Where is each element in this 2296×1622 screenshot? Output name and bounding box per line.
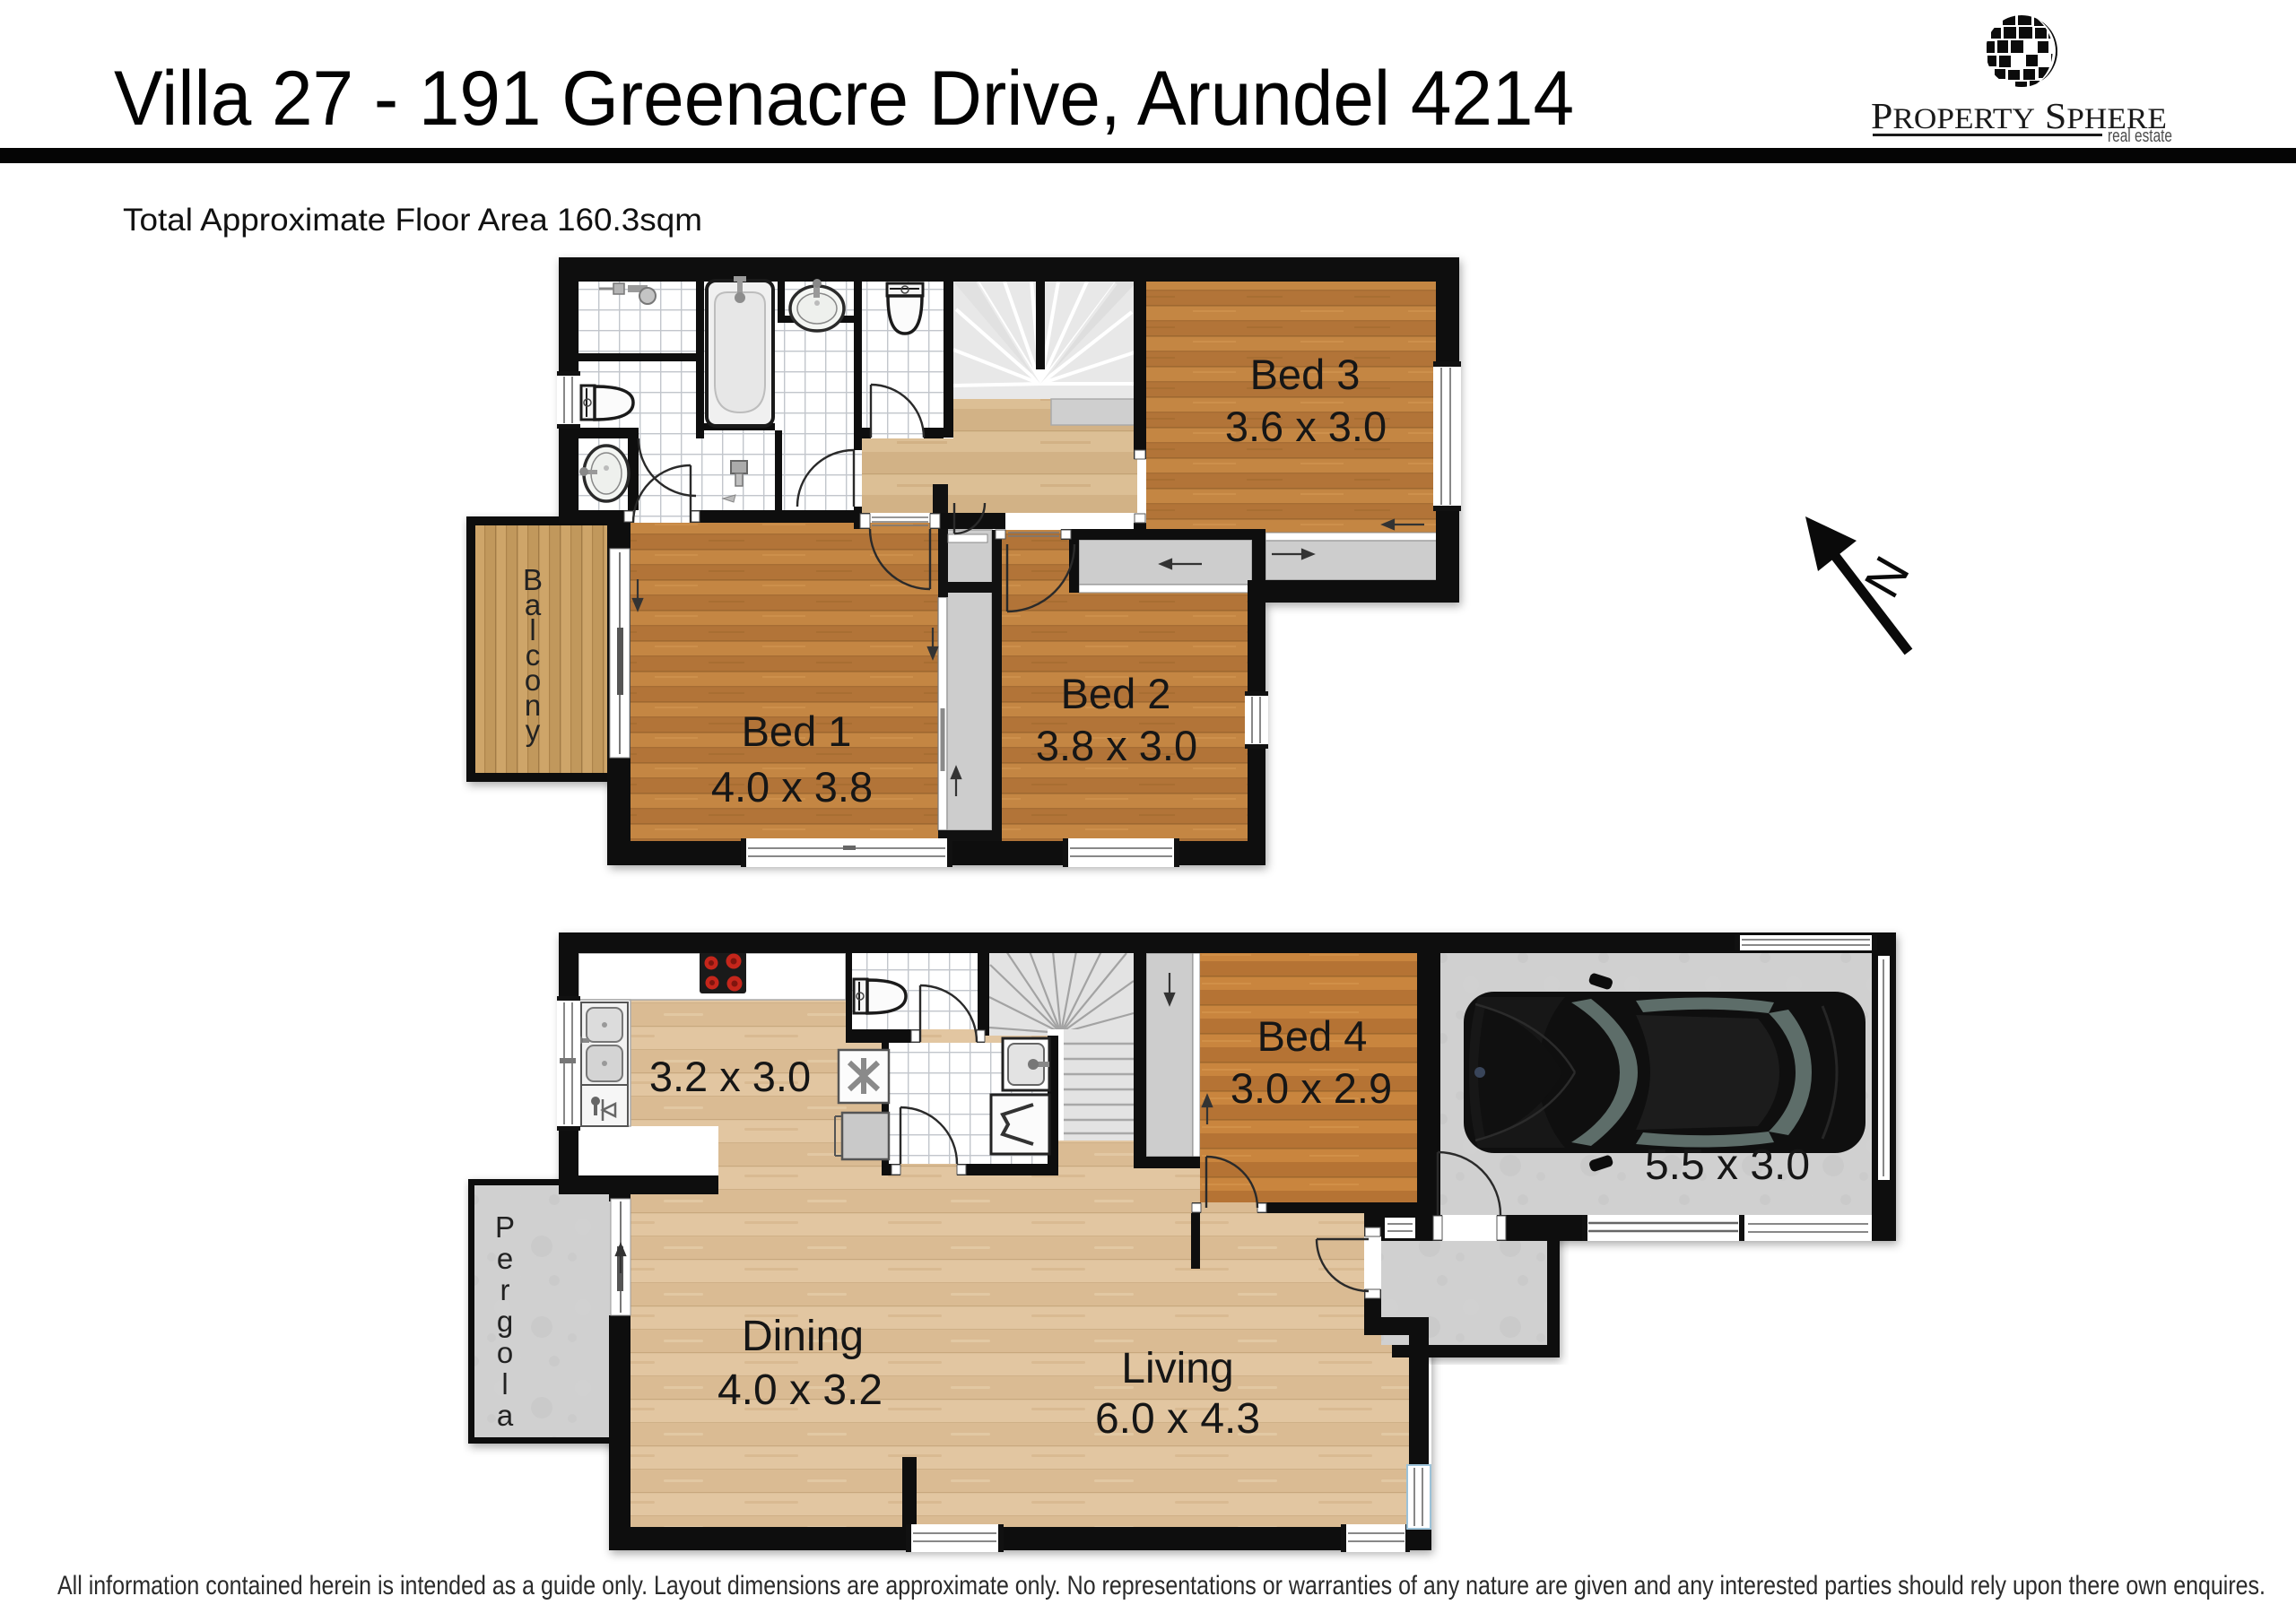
svg-text:Bed 3: Bed 3 [1250,351,1361,398]
svg-text:3.8 x 3.0: 3.8 x 3.0 [1036,722,1197,769]
svg-text:l: l [501,1367,508,1401]
svg-text:3.0 x 2.9: 3.0 x 2.9 [1231,1064,1392,1112]
svg-text:Total Approximate Floor Area 1: Total Approximate Floor Area 160.3sqm [123,203,702,238]
svg-text:e: e [497,1242,513,1275]
svg-text:Bed 1: Bed 1 [742,707,852,755]
svg-text:g: g [497,1305,513,1338]
svg-text:All information contained here: All information contained herein is inte… [57,1571,2266,1600]
svg-text:Bed 2: Bed 2 [1061,670,1171,717]
svg-text:5.5 x 3.0: 5.5 x 3.0 [1645,1141,1810,1189]
svg-text:3.6 x 3.0: 3.6 x 3.0 [1225,403,1387,450]
svg-text:real estate: real estate [2108,126,2172,146]
svg-text:y: y [526,714,541,747]
svg-text:r: r [500,1273,510,1306]
svg-text:a: a [497,1399,514,1432]
svg-text:Dining: Dining [742,1313,864,1360]
svg-text:P: P [495,1210,515,1244]
svg-text:Living: Living [1121,1345,1233,1392]
svg-text:4.0 x 3.8: 4.0 x 3.8 [711,763,873,811]
svg-text:6.0 x 4.3: 6.0 x 4.3 [1095,1395,1260,1443]
svg-text:Bed 4: Bed 4 [1257,1012,1368,1060]
svg-text:Villa 27 - 191 Greenacre Drive: Villa 27 - 191 Greenacre Drive, Arundel … [114,56,1574,142]
svg-text:3.2 x 3.0: 3.2 x 3.0 [649,1053,811,1100]
svg-text:4.0 x 3.2: 4.0 x 3.2 [717,1366,883,1414]
svg-text:o: o [497,1336,513,1369]
